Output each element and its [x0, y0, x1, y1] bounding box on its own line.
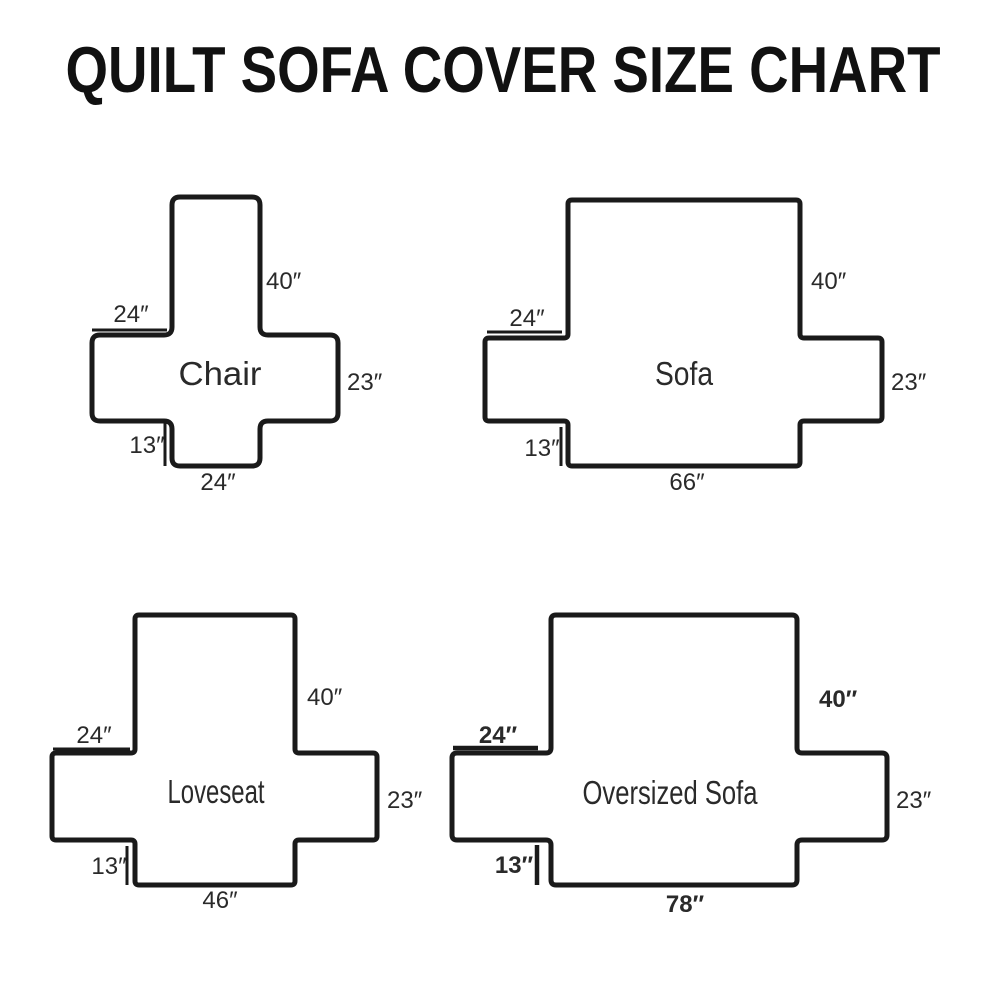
- loveseat-skirt-drop-label: 13″: [91, 853, 127, 880]
- sofa-skirt-drop-label: 13″: [524, 435, 560, 462]
- oversized-sofa-arm-width-label: 24″: [479, 722, 518, 749]
- loveseat-arm-width-label: 24″: [76, 722, 112, 749]
- oversized-sofa-side-height-label: 23″: [896, 787, 932, 814]
- loveseat-back-height-label: 40″: [307, 684, 343, 711]
- oversized-sofa-base-width-label: 78″: [666, 891, 705, 918]
- chair-back-height-label: 40″: [266, 268, 302, 295]
- loveseat-name-label: Loveseat: [168, 773, 265, 810]
- page-title: QUILT SOFA COVER SIZE CHART: [66, 33, 941, 106]
- diagram-chair: 40″ 24″ Chair 23″ 13″ 24″: [92, 197, 383, 496]
- chair-name-label: Chair: [179, 355, 262, 392]
- chair-base-width-label: 24″: [200, 469, 236, 496]
- loveseat-side-height-label: 23″: [387, 787, 423, 814]
- chair-side-height-label: 23″: [347, 369, 383, 396]
- sofa-back-height-label: 40″: [811, 268, 847, 295]
- sofa-base-width-label: 66″: [669, 469, 705, 496]
- size-chart-page: QUILT SOFA COVER SIZE CHART 40″ 24″ Chai…: [0, 0, 1007, 1000]
- loveseat-base-width-label: 46″: [202, 887, 238, 914]
- chair-arm-width-label: 24″: [113, 301, 149, 328]
- sofa-name-label: Sofa: [655, 355, 714, 392]
- diagram-loveseat: 40″ 24″ Loveseat 23″ 13″ 46″: [52, 615, 423, 914]
- oversized-sofa-skirt-drop-label: 13″: [495, 852, 534, 879]
- diagram-sofa: 40″ 24″ Sofa 23″ 13″ 66″: [485, 200, 927, 496]
- size-chart-canvas: QUILT SOFA COVER SIZE CHART 40″ 24″ Chai…: [0, 0, 1007, 1000]
- chair-skirt-drop-label: 13″: [129, 432, 165, 459]
- sofa-arm-width-label: 24″: [509, 305, 545, 332]
- diagram-oversized-sofa: 40″ 24″ Oversized Sofa 23″ 13″ 78″: [452, 615, 932, 918]
- oversized-sofa-name-label: Oversized Sofa: [583, 774, 758, 811]
- sofa-side-height-label: 23″: [891, 369, 927, 396]
- oversized-sofa-back-height-label: 40″: [819, 686, 858, 713]
